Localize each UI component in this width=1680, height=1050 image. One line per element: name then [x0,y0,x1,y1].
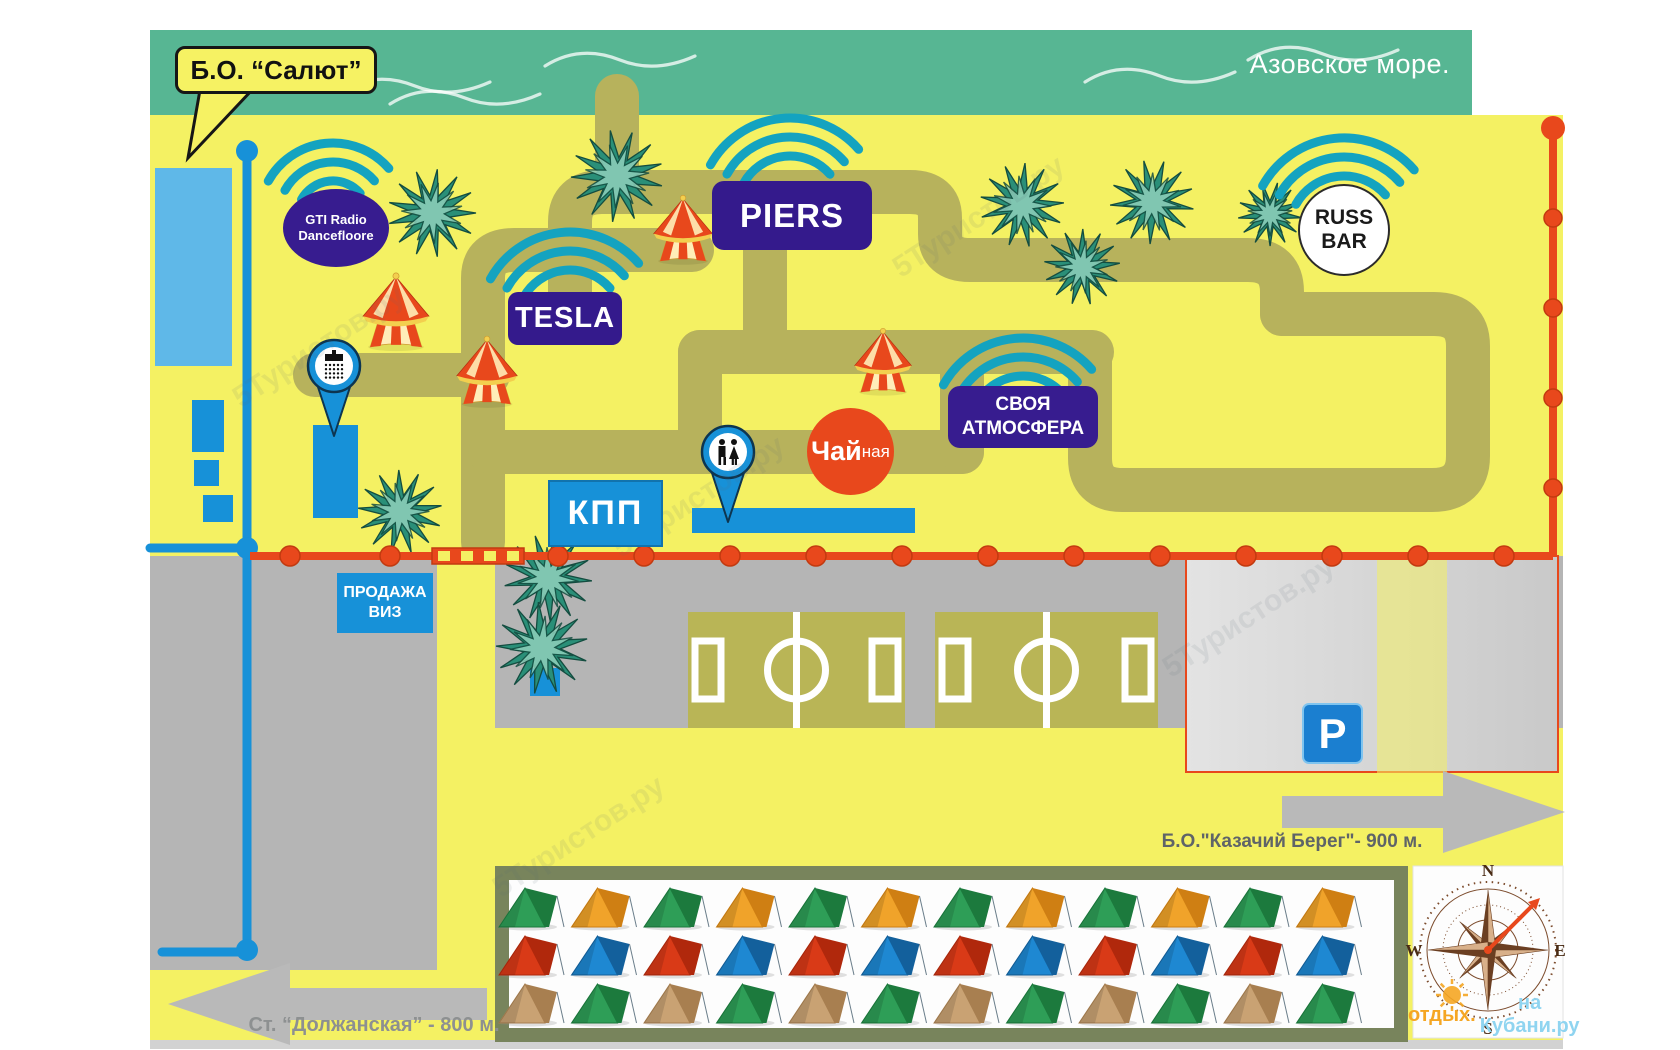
building [194,460,219,486]
site-map: NSWE Азовское море. Б.О. “Салют” GTI Rad… [0,0,1680,1050]
fence-post [1544,389,1562,407]
compass-letter: N [1482,861,1495,880]
sea-name: Азовское море. [1040,46,1450,82]
footer-watermark-orange: отдых. [1408,1004,1476,1027]
visa-line2: ВИЗ [368,603,401,623]
fence-post [280,546,300,566]
footer-watermark: отдых. на Кубани.ру [1408,1002,1578,1028]
svoya-line1: СВОЯ [995,393,1050,417]
fence-post [1236,546,1256,566]
tea-house-label: Чайная [807,408,894,495]
tea-suffix: ная [862,442,890,462]
fence-post [1064,546,1084,566]
checkpoint-label: КПП [548,480,663,547]
footer-watermark-blue: на Кубани.ру [1480,992,1580,1038]
football-field [688,612,905,728]
side-road [1377,556,1447,782]
fence-post [1322,546,1342,566]
map-canvas: NSWE [0,0,1680,1050]
gate-barrier [432,548,524,564]
fence-post [1544,479,1562,497]
building [313,425,358,518]
compass-letter: E [1554,941,1565,960]
fence-post [806,546,826,566]
football-field [935,612,1158,728]
fence-post [548,546,568,566]
fence-post [978,546,998,566]
visa-sales-label: ПРОДАЖА ВИЗ [337,573,433,633]
russ-line2: BAR [1321,230,1367,254]
svoya-atmosfera-label: СВОЯ АТМОСФЕРА [948,386,1098,448]
svoya-line2: АТМОСФЕРА [962,417,1084,441]
fence-post [1544,209,1562,227]
direction-dolzhanskaya: Ст. “Должанская” - 800 м. [246,1011,502,1039]
map-title: Б.О. “Салют” [175,46,377,94]
fence-post [634,546,654,566]
russ-bar-label: RUSS BAR [1298,184,1390,276]
gti-line1: GTI Radio [305,212,366,228]
tea-main: Чай [811,436,862,467]
fence-post [1408,546,1428,566]
building [203,495,233,522]
parking-sign: P [1302,703,1363,764]
parking-area [1186,556,1558,772]
fence-post [720,546,740,566]
gti-radio-dancefloor-label: GTI Radio Dancefloore [283,189,389,267]
fence-post [380,546,400,566]
tesla-label: TESLA [508,292,622,345]
fence-post [1544,299,1562,317]
water-line-node [236,939,258,961]
fence-post [1150,546,1170,566]
pool [155,168,232,366]
visa-line1: ПРОДАЖА [343,583,426,603]
fence-post [1494,546,1514,566]
piers-label: PIERS [712,181,872,250]
building [192,400,224,452]
gti-line2: Dancefloore [298,228,373,244]
compass-letter: W [1406,941,1423,960]
water-line-node [236,140,258,162]
direction-kazachiy-bereg: Б.О."Казачий Берег"- 900 м. [1152,829,1432,855]
fence-corner [1541,116,1565,140]
russ-line1: RUSS [1315,206,1373,230]
fence-post [892,546,912,566]
